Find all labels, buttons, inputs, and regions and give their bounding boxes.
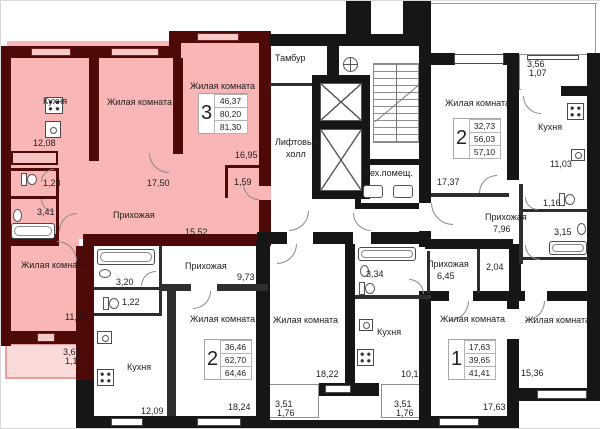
wall	[355, 159, 429, 165]
elevator-shaft	[320, 83, 362, 121]
room-label-living: Жилая комната	[525, 315, 590, 325]
core-label-vestibule: Тамбур	[275, 53, 306, 63]
wall	[312, 191, 370, 199]
wall	[312, 75, 370, 83]
section-outline-line	[425, 3, 597, 4]
elevator-shaft	[320, 129, 362, 191]
door-opening	[525, 291, 547, 301]
tech-fixture	[393, 185, 413, 198]
wall	[312, 121, 370, 129]
apartment-2-top-region[interactable]	[421, 46, 599, 246]
wall	[346, 1, 371, 36]
tech-fixture	[363, 185, 383, 198]
core-label-tech-room: Тех.помещ.	[365, 168, 413, 178]
stairs	[373, 63, 419, 143]
core-label-elevator-hall: холл	[286, 149, 306, 159]
door-arc	[289, 211, 309, 231]
wall	[362, 75, 370, 199]
room-area: 15,36	[521, 368, 544, 378]
apartment-1-region[interactable]	[347, 241, 509, 426]
window	[537, 390, 587, 399]
ventilation-icon	[343, 57, 358, 72]
core-label-elevator-hall: Лифтовый	[275, 137, 318, 147]
door-arc	[353, 213, 371, 231]
floor-plan: Кухня 12,08 Жилая комната 17,50 Жилая ко…	[0, 0, 600, 429]
apartment-2-bottom-region[interactable]	[86, 241, 344, 426]
wall	[355, 203, 429, 209]
